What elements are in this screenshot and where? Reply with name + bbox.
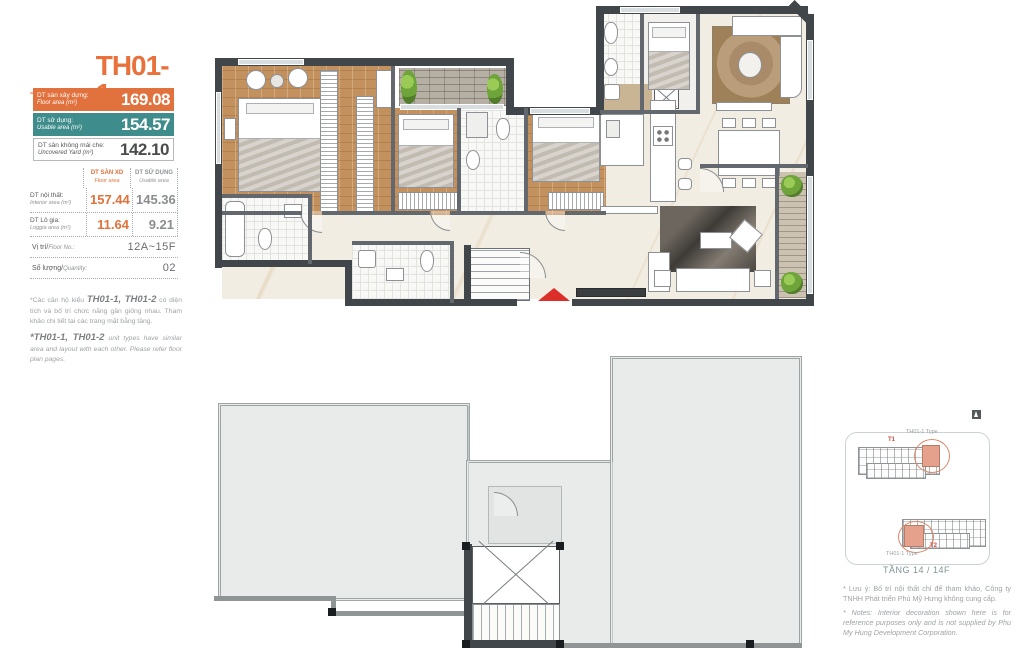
parapet (214, 596, 336, 601)
partition (308, 194, 312, 264)
stair-wall (464, 544, 472, 648)
bed (532, 112, 600, 182)
window (238, 59, 304, 65)
window (530, 108, 590, 114)
north-arrow-icon (972, 410, 981, 419)
entrance-arrow (538, 288, 570, 301)
partition (450, 211, 545, 215)
column (462, 640, 470, 648)
kitchen-island (650, 100, 676, 202)
dining-chair (762, 118, 776, 128)
console-table (600, 206, 658, 214)
tower-1-label: T1 (888, 437, 895, 443)
toilet (604, 22, 618, 44)
master-bed (238, 98, 322, 192)
tv-cabinet (576, 288, 646, 297)
parapet (560, 643, 802, 648)
partition (450, 241, 454, 303)
maid-bed (648, 22, 690, 90)
site-note-vi: * Lưu ý: Bố trí nội thất chỉ để tham khả… (843, 584, 1011, 603)
wardrobe (548, 192, 604, 210)
side-table (754, 270, 771, 287)
wall (596, 6, 604, 113)
main-floor-plan (0, 0, 1024, 330)
dining-chair (742, 118, 756, 128)
column (462, 542, 470, 550)
coffee-table (700, 232, 732, 249)
plant (781, 175, 803, 197)
terrace-line (612, 462, 613, 646)
stove (653, 126, 673, 146)
brochure-page: Tophouse TH01-1 DT sàn xây dựng:Floor ar… (0, 0, 1024, 659)
window-door (400, 104, 504, 110)
site-notes: * Lưu ý: Bố trí nội thất chỉ để tham khả… (843, 584, 1011, 638)
side-table (654, 270, 671, 287)
terrace-right (610, 356, 802, 648)
dining-chair (742, 178, 756, 188)
sink (386, 268, 404, 281)
parapet (331, 611, 468, 616)
partition (640, 14, 644, 110)
toilet (258, 228, 272, 250)
site-note-en: * Notes: Interior decoration shown here … (843, 608, 1011, 638)
window (620, 7, 680, 13)
highlight-oval (914, 439, 950, 473)
terrace-stairs (472, 604, 560, 644)
tower-1-unit-type-label: TH01-1 Type (906, 429, 938, 435)
site-caption: TẦNG 14 / 14F (845, 565, 988, 575)
bar-stool (678, 178, 692, 190)
dining-table (718, 130, 780, 176)
tv-console (716, 102, 772, 111)
bathtub (225, 201, 245, 257)
plant (487, 74, 503, 104)
window (807, 40, 813, 100)
tower-2-unit-type-label: TH01-1 Type (886, 551, 918, 557)
stair-core-void (472, 546, 560, 604)
wardrobe (356, 96, 374, 212)
column (556, 640, 564, 648)
column (746, 640, 754, 648)
armchair (288, 68, 308, 88)
partition (600, 110, 700, 114)
dining-chair (722, 118, 736, 128)
dining-chair (722, 178, 736, 188)
washer (604, 84, 620, 100)
highlight-oval (898, 521, 934, 553)
partition (222, 194, 312, 198)
toilet (496, 118, 510, 140)
shower (466, 112, 488, 138)
partition (457, 108, 461, 215)
armchair (246, 70, 266, 90)
terrace-left (218, 403, 470, 601)
sink (466, 150, 480, 170)
dining-chair (762, 178, 776, 188)
stair-wall (464, 245, 471, 305)
window (216, 92, 221, 164)
bed (398, 114, 454, 188)
partition (322, 211, 430, 215)
wardrobe (320, 70, 338, 212)
partition (700, 164, 808, 168)
wardrobe (398, 192, 458, 210)
side-table (270, 74, 284, 88)
kitchen-sink (606, 120, 620, 138)
bar-stool (678, 158, 692, 170)
sofa (676, 268, 750, 292)
washer (358, 250, 376, 268)
pouf (738, 52, 762, 78)
family-sofa (732, 16, 802, 36)
family-sofa (780, 36, 802, 98)
partition (565, 211, 606, 215)
plant (401, 70, 417, 104)
plant (781, 272, 803, 294)
window (807, 176, 813, 294)
partition (524, 108, 528, 215)
wall (345, 299, 517, 306)
column (556, 542, 564, 550)
partition (696, 14, 700, 110)
site-key-plan: T1 TH01-1 Type T2 TH01-1 Type (845, 432, 990, 565)
wall (572, 299, 814, 306)
sink (604, 58, 618, 76)
wall (215, 260, 352, 267)
nightstand (224, 118, 236, 140)
partition (352, 241, 454, 245)
partition (391, 66, 395, 215)
partition (222, 211, 302, 215)
toilet (420, 250, 434, 272)
tower-2-label: T2 (930, 543, 937, 549)
partition (775, 168, 779, 299)
stair-wall (464, 640, 564, 648)
column (328, 608, 336, 616)
